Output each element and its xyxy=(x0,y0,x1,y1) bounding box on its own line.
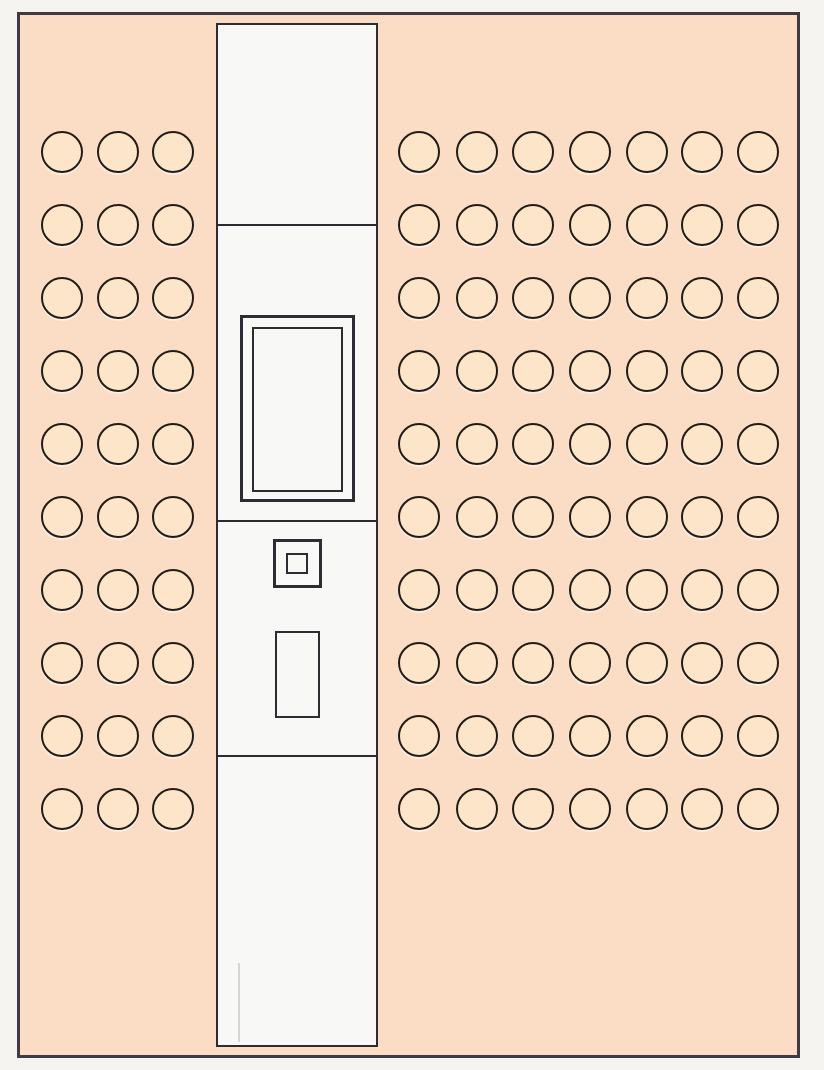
right-hole-grid-circle xyxy=(569,131,611,173)
right-hole-grid-circle xyxy=(569,642,611,684)
right-hole-grid-circle xyxy=(737,204,779,246)
right-hole-grid-circle xyxy=(512,423,554,465)
right-hole-grid-circle xyxy=(512,277,554,319)
right-hole-grid-circle xyxy=(512,204,554,246)
right-hole-grid-circle xyxy=(737,642,779,684)
right-hole-grid-circle xyxy=(456,204,498,246)
right-hole-grid-circle xyxy=(681,788,723,830)
column-divider xyxy=(216,520,378,522)
right-hole-grid-circle xyxy=(737,131,779,173)
right-hole-grid-circle xyxy=(456,569,498,611)
right-hole-grid-circle xyxy=(626,277,668,319)
right-hole-grid-circle xyxy=(456,350,498,392)
right-hole-grid-circle xyxy=(737,496,779,538)
right-hole-grid-circle xyxy=(569,350,611,392)
left-hole-grid-circle xyxy=(152,204,194,246)
right-hole-grid-circle xyxy=(737,423,779,465)
left-hole-grid-circle xyxy=(41,496,83,538)
left-hole-grid-circle xyxy=(41,423,83,465)
left-hole-grid-circle xyxy=(97,204,139,246)
left-hole-grid-circle xyxy=(41,131,83,173)
right-hole-grid-circle xyxy=(398,131,440,173)
left-hole-grid-circle xyxy=(41,350,83,392)
right-hole-grid-circle xyxy=(398,277,440,319)
right-hole-grid-circle xyxy=(626,423,668,465)
right-hole-grid-circle xyxy=(681,569,723,611)
right-hole-grid-circle xyxy=(569,496,611,538)
right-hole-grid-circle xyxy=(681,277,723,319)
column-divider xyxy=(216,755,378,757)
right-hole-grid-circle xyxy=(681,715,723,757)
right-hole-grid-circle xyxy=(398,496,440,538)
right-hole-grid-circle xyxy=(512,496,554,538)
left-hole-grid-circle xyxy=(97,569,139,611)
right-hole-grid-circle xyxy=(512,642,554,684)
right-hole-grid-circle xyxy=(737,569,779,611)
faint-artifact-line xyxy=(238,963,240,1042)
right-hole-grid-circle xyxy=(512,131,554,173)
right-hole-grid-circle xyxy=(398,569,440,611)
left-hole-grid-circle xyxy=(152,496,194,538)
left-hole-grid-circle xyxy=(97,277,139,319)
right-hole-grid-circle xyxy=(681,496,723,538)
right-hole-grid-circle xyxy=(456,496,498,538)
right-hole-grid-circle xyxy=(569,788,611,830)
framed-panel-inner xyxy=(252,327,343,492)
left-hole-grid-circle xyxy=(97,715,139,757)
right-hole-grid-circle xyxy=(398,642,440,684)
left-hole-grid-circle xyxy=(41,642,83,684)
right-hole-grid-circle xyxy=(569,423,611,465)
right-hole-grid-circle xyxy=(737,277,779,319)
center-column xyxy=(216,23,378,1047)
left-hole-grid-circle xyxy=(97,131,139,173)
right-hole-grid-circle xyxy=(681,204,723,246)
left-hole-grid-circle xyxy=(97,496,139,538)
left-hole-grid-circle xyxy=(152,715,194,757)
right-hole-grid-circle xyxy=(456,788,498,830)
right-hole-grid-circle xyxy=(626,715,668,757)
left-hole-grid-circle xyxy=(152,350,194,392)
right-hole-grid-circle xyxy=(398,788,440,830)
left-hole-grid-circle xyxy=(97,788,139,830)
right-hole-grid-circle xyxy=(569,715,611,757)
right-hole-grid-circle xyxy=(456,277,498,319)
right-hole-grid-circle xyxy=(626,131,668,173)
left-hole-grid-circle xyxy=(41,204,83,246)
right-hole-grid-circle xyxy=(626,350,668,392)
right-hole-grid-circle xyxy=(512,788,554,830)
left-hole-grid-circle xyxy=(152,788,194,830)
right-hole-grid-circle xyxy=(626,496,668,538)
left-hole-grid-circle xyxy=(41,715,83,757)
right-hole-grid-circle xyxy=(398,350,440,392)
right-hole-grid-circle xyxy=(569,204,611,246)
right-hole-grid-circle xyxy=(626,788,668,830)
left-hole-grid-circle xyxy=(97,642,139,684)
right-hole-grid-circle xyxy=(737,715,779,757)
left-hole-grid-circle xyxy=(152,423,194,465)
right-hole-grid-circle xyxy=(512,350,554,392)
left-hole-grid-circle xyxy=(152,569,194,611)
right-hole-grid-circle xyxy=(456,423,498,465)
left-hole-grid-circle xyxy=(97,350,139,392)
left-hole-grid-circle xyxy=(152,277,194,319)
left-hole-grid-circle xyxy=(152,131,194,173)
right-hole-grid-circle xyxy=(681,423,723,465)
tall-small-rect xyxy=(275,631,320,718)
right-hole-grid-circle xyxy=(681,350,723,392)
right-hole-grid-circle xyxy=(737,350,779,392)
plan-canvas xyxy=(0,0,824,1070)
right-hole-grid-circle xyxy=(626,204,668,246)
right-hole-grid-circle xyxy=(512,715,554,757)
right-hole-grid-circle xyxy=(456,642,498,684)
right-hole-grid-circle xyxy=(737,788,779,830)
right-hole-grid-circle xyxy=(681,131,723,173)
right-hole-grid-circle xyxy=(681,642,723,684)
right-hole-grid-circle xyxy=(398,204,440,246)
right-hole-grid-circle xyxy=(456,715,498,757)
right-hole-grid-circle xyxy=(456,131,498,173)
right-hole-grid-circle xyxy=(512,569,554,611)
column-divider xyxy=(216,224,378,226)
right-hole-grid-circle xyxy=(569,569,611,611)
left-hole-grid-circle xyxy=(152,642,194,684)
left-hole-grid-circle xyxy=(41,569,83,611)
right-hole-grid-circle xyxy=(626,642,668,684)
left-hole-grid-circle xyxy=(41,277,83,319)
right-hole-grid-circle xyxy=(626,569,668,611)
small-square-inner xyxy=(286,553,308,574)
left-hole-grid-circle xyxy=(41,788,83,830)
right-hole-grid-circle xyxy=(569,277,611,319)
right-hole-grid-circle xyxy=(398,423,440,465)
right-hole-grid-circle xyxy=(398,715,440,757)
left-hole-grid-circle xyxy=(97,423,139,465)
